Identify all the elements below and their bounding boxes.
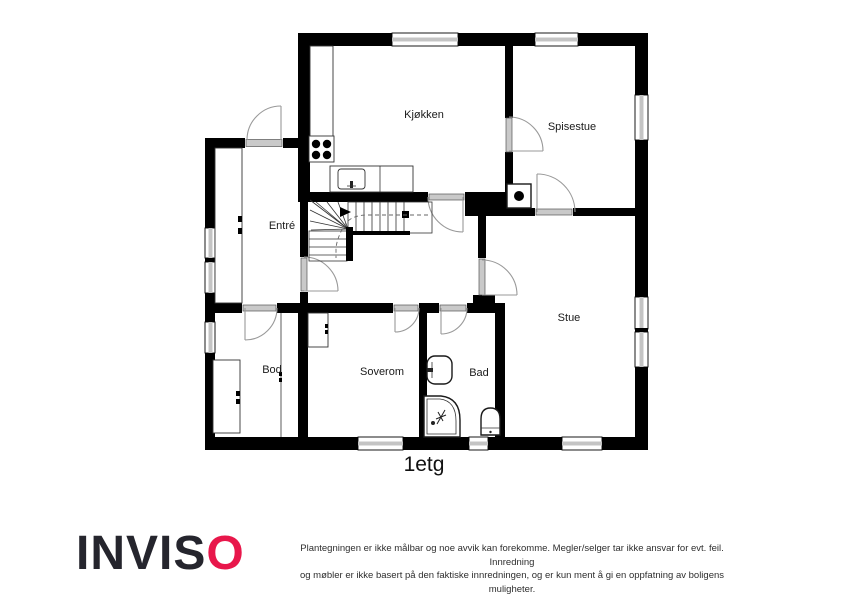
window	[562, 437, 602, 450]
toilet-icon	[481, 408, 500, 435]
window	[205, 322, 215, 353]
window	[469, 437, 488, 450]
logo-text-dark: INVIS	[76, 527, 206, 580]
window	[205, 262, 215, 293]
disclaimer-line-1: Plantegningen er ikke målbar og noe avvi…	[294, 542, 730, 569]
floor-title: 1etg	[404, 453, 445, 476]
wardrobe-storage	[213, 360, 240, 433]
wardrobe-bedroom	[308, 313, 328, 347]
room-label-bedroom: Soverom	[360, 366, 404, 378]
floor-plan: Kjøkken Spisestue Entré Stue Bod Soverom…	[0, 0, 849, 600]
kitchen-counter	[310, 46, 333, 137]
room-label-living: Stue	[558, 312, 581, 324]
window	[205, 228, 215, 258]
window	[635, 297, 648, 329]
window	[392, 33, 458, 46]
room-label-kitchen: Kjøkken	[404, 109, 444, 121]
room-label-dining: Spisestue	[548, 121, 596, 133]
kitchen-dining-door	[506, 117, 543, 152]
interior-walls	[205, 33, 648, 450]
storage-door	[243, 305, 277, 340]
bath-door	[440, 305, 467, 334]
dining-living-door	[536, 174, 575, 215]
disclaimer-line-2: og møbler er ikke basert på den faktiske…	[294, 569, 730, 596]
window	[635, 95, 648, 140]
staircase	[309, 200, 432, 261]
wardrobe-entry	[215, 148, 242, 303]
window	[535, 33, 578, 46]
window	[358, 437, 403, 450]
inviso-logo: INVISO	[76, 526, 245, 581]
kitchen-hall-door	[428, 194, 464, 232]
room-label-entry: Entré	[269, 220, 295, 232]
entry-hall-door	[301, 257, 338, 291]
stair-direction-arrow	[340, 207, 351, 217]
window	[635, 332, 648, 367]
fireplace-icon	[507, 184, 531, 208]
stove-icon	[309, 136, 334, 162]
bathroom-sink-icon	[427, 356, 452, 384]
bedroom-door	[394, 305, 419, 332]
entrance-door	[246, 106, 282, 147]
shower-icon	[424, 396, 460, 437]
disclaimer-text: Plantegningen er ikke målbar og noe avvi…	[294, 542, 730, 596]
kitchen-sink-icon	[338, 169, 365, 189]
logo-text-accent: O	[206, 527, 244, 580]
room-label-storage: Bod	[262, 364, 282, 376]
floor-plan-page: Kjøkken Spisestue Entré Stue Bod Soverom…	[0, 0, 849, 600]
kitchen-fixtures	[309, 46, 413, 192]
hall-living-door	[479, 259, 517, 295]
room-label-bathroom: Bad	[469, 367, 489, 379]
